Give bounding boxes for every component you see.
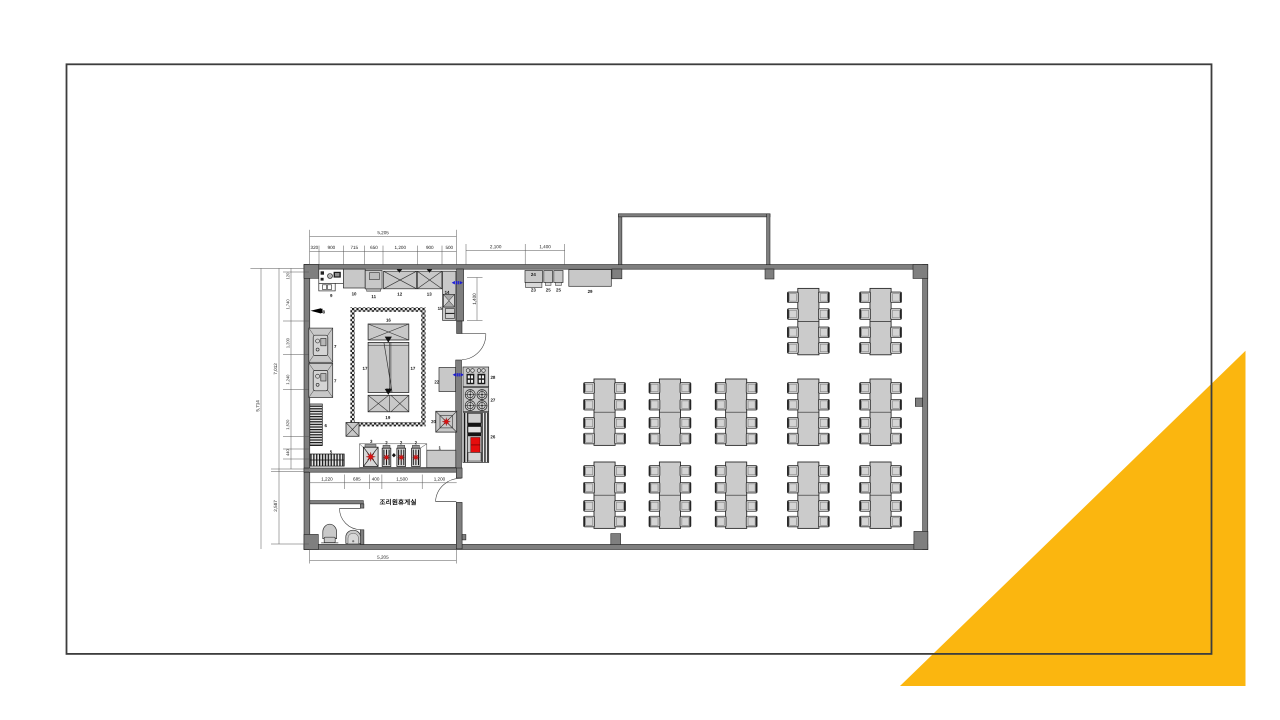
svg-text:22: 22	[434, 380, 439, 385]
svg-text:900: 900	[328, 245, 336, 250]
svg-text:10: 10	[352, 291, 357, 296]
svg-text:1,740: 1,740	[285, 299, 290, 310]
svg-text:440: 440	[285, 448, 290, 455]
svg-text:400: 400	[372, 477, 380, 482]
svg-text:19: 19	[385, 415, 390, 420]
svg-text:7,012: 7,012	[273, 363, 278, 375]
svg-text:29: 29	[588, 289, 593, 294]
svg-text:1,200: 1,200	[285, 337, 290, 348]
svg-text:27: 27	[490, 398, 495, 403]
svg-text:1,200: 1,200	[395, 245, 407, 250]
svg-text:17: 17	[410, 366, 415, 371]
svg-text:12: 12	[397, 292, 402, 297]
svg-text:18: 18	[386, 387, 391, 392]
svg-text:24: 24	[531, 272, 536, 277]
svg-text:5,205: 5,205	[377, 555, 389, 560]
svg-text:17: 17	[363, 366, 368, 371]
svg-text:500: 500	[445, 245, 453, 250]
svg-text:5,205: 5,205	[377, 230, 389, 235]
svg-text:15: 15	[438, 306, 443, 311]
svg-text:조리원휴게실: 조리원휴게실	[379, 497, 416, 506]
svg-text:715: 715	[350, 245, 358, 250]
svg-text:1,520: 1,520	[285, 419, 290, 430]
svg-text:320: 320	[311, 245, 319, 250]
svg-text:1,200: 1,200	[434, 477, 446, 482]
svg-text:900: 900	[426, 245, 434, 250]
svg-text:2,587: 2,587	[273, 500, 278, 512]
svg-text:2,100: 2,100	[490, 244, 502, 249]
svg-text:1,400: 1,400	[539, 244, 551, 249]
svg-text:28: 28	[490, 375, 495, 380]
svg-text:1,500: 1,500	[396, 477, 408, 482]
svg-text:650: 650	[370, 245, 378, 250]
svg-text:1,220: 1,220	[321, 477, 333, 482]
svg-text:25: 25	[546, 287, 551, 292]
svg-text:16: 16	[386, 318, 391, 323]
svg-text:120: 120	[285, 272, 290, 279]
svg-text:25: 25	[556, 287, 561, 292]
svg-text:13: 13	[427, 292, 432, 297]
svg-text:11: 11	[371, 294, 376, 299]
svg-text:1,400: 1,400	[472, 293, 477, 305]
svg-text:14: 14	[445, 290, 450, 295]
svg-text:23: 23	[531, 287, 536, 292]
svg-text:685: 685	[353, 477, 361, 482]
svg-text:20: 20	[431, 419, 436, 424]
svg-text:5,714: 5,714	[255, 400, 260, 412]
svg-text:1,240: 1,240	[285, 374, 290, 385]
svg-text:26: 26	[490, 434, 495, 439]
